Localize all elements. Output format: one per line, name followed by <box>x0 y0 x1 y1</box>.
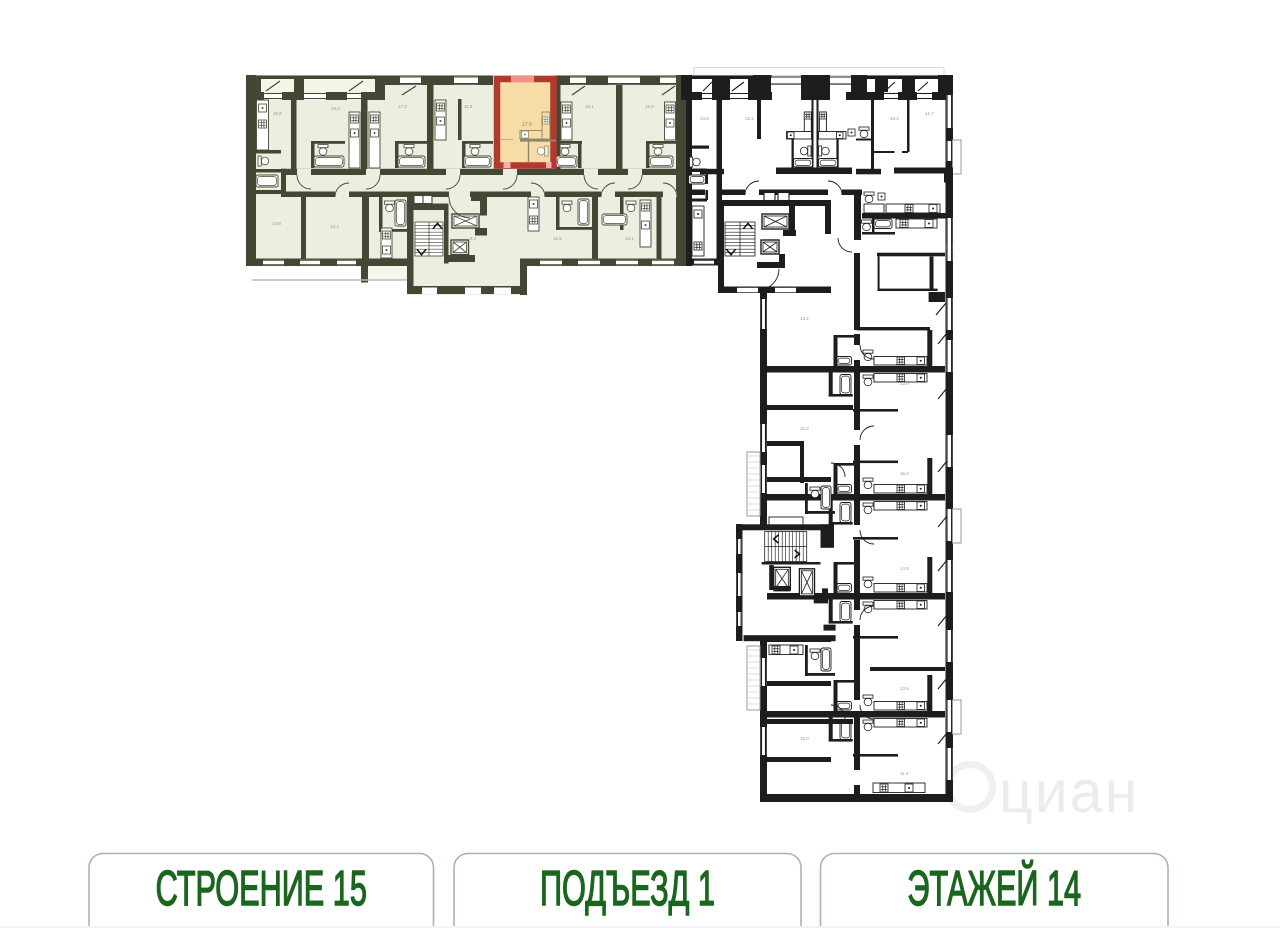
svg-text:15.8: 15.8 <box>645 104 654 109</box>
svg-text:циан: циан <box>999 759 1139 825</box>
svg-text:16.1: 16.1 <box>585 104 594 109</box>
svg-text:12.6: 12.6 <box>553 236 562 241</box>
svg-text:11.9: 11.9 <box>464 104 473 109</box>
svg-text:8.2: 8.2 <box>470 236 477 241</box>
svg-text:12.3: 12.3 <box>800 426 809 431</box>
svg-text:15.5: 15.5 <box>900 471 909 476</box>
svg-text:16.4: 16.4 <box>890 116 899 121</box>
svg-text:14.2: 14.2 <box>800 316 809 321</box>
svg-text:16.3: 16.3 <box>331 106 340 111</box>
svg-text:СТРОЕНИЕ 15: СТРОЕНИЕ 15 <box>156 861 367 916</box>
svg-text:13.8: 13.8 <box>700 116 709 121</box>
svg-text:ПОДЪЕЗД 1: ПОДЪЕЗД 1 <box>540 861 715 916</box>
svg-text:17.9: 17.9 <box>522 122 532 128</box>
svg-text:15.6: 15.6 <box>273 111 282 116</box>
svg-text:15.1: 15.1 <box>625 236 634 241</box>
svg-text:12.7: 12.7 <box>925 111 934 116</box>
svg-text:13.6: 13.6 <box>900 686 909 691</box>
svg-text:11.4: 11.4 <box>900 771 909 776</box>
svg-text:14.8: 14.8 <box>272 221 281 226</box>
svg-text:13.4: 13.4 <box>330 224 339 229</box>
svg-text:13.9: 13.9 <box>900 381 909 386</box>
svg-text:14.8: 14.8 <box>900 566 909 571</box>
svg-text:ЭТАЖЕЙ 14: ЭТАЖЕЙ 14 <box>907 861 1081 916</box>
svg-text:15.2: 15.2 <box>745 116 754 121</box>
svg-text:17.2: 17.2 <box>398 104 407 109</box>
svg-text:15.0: 15.0 <box>800 736 809 741</box>
